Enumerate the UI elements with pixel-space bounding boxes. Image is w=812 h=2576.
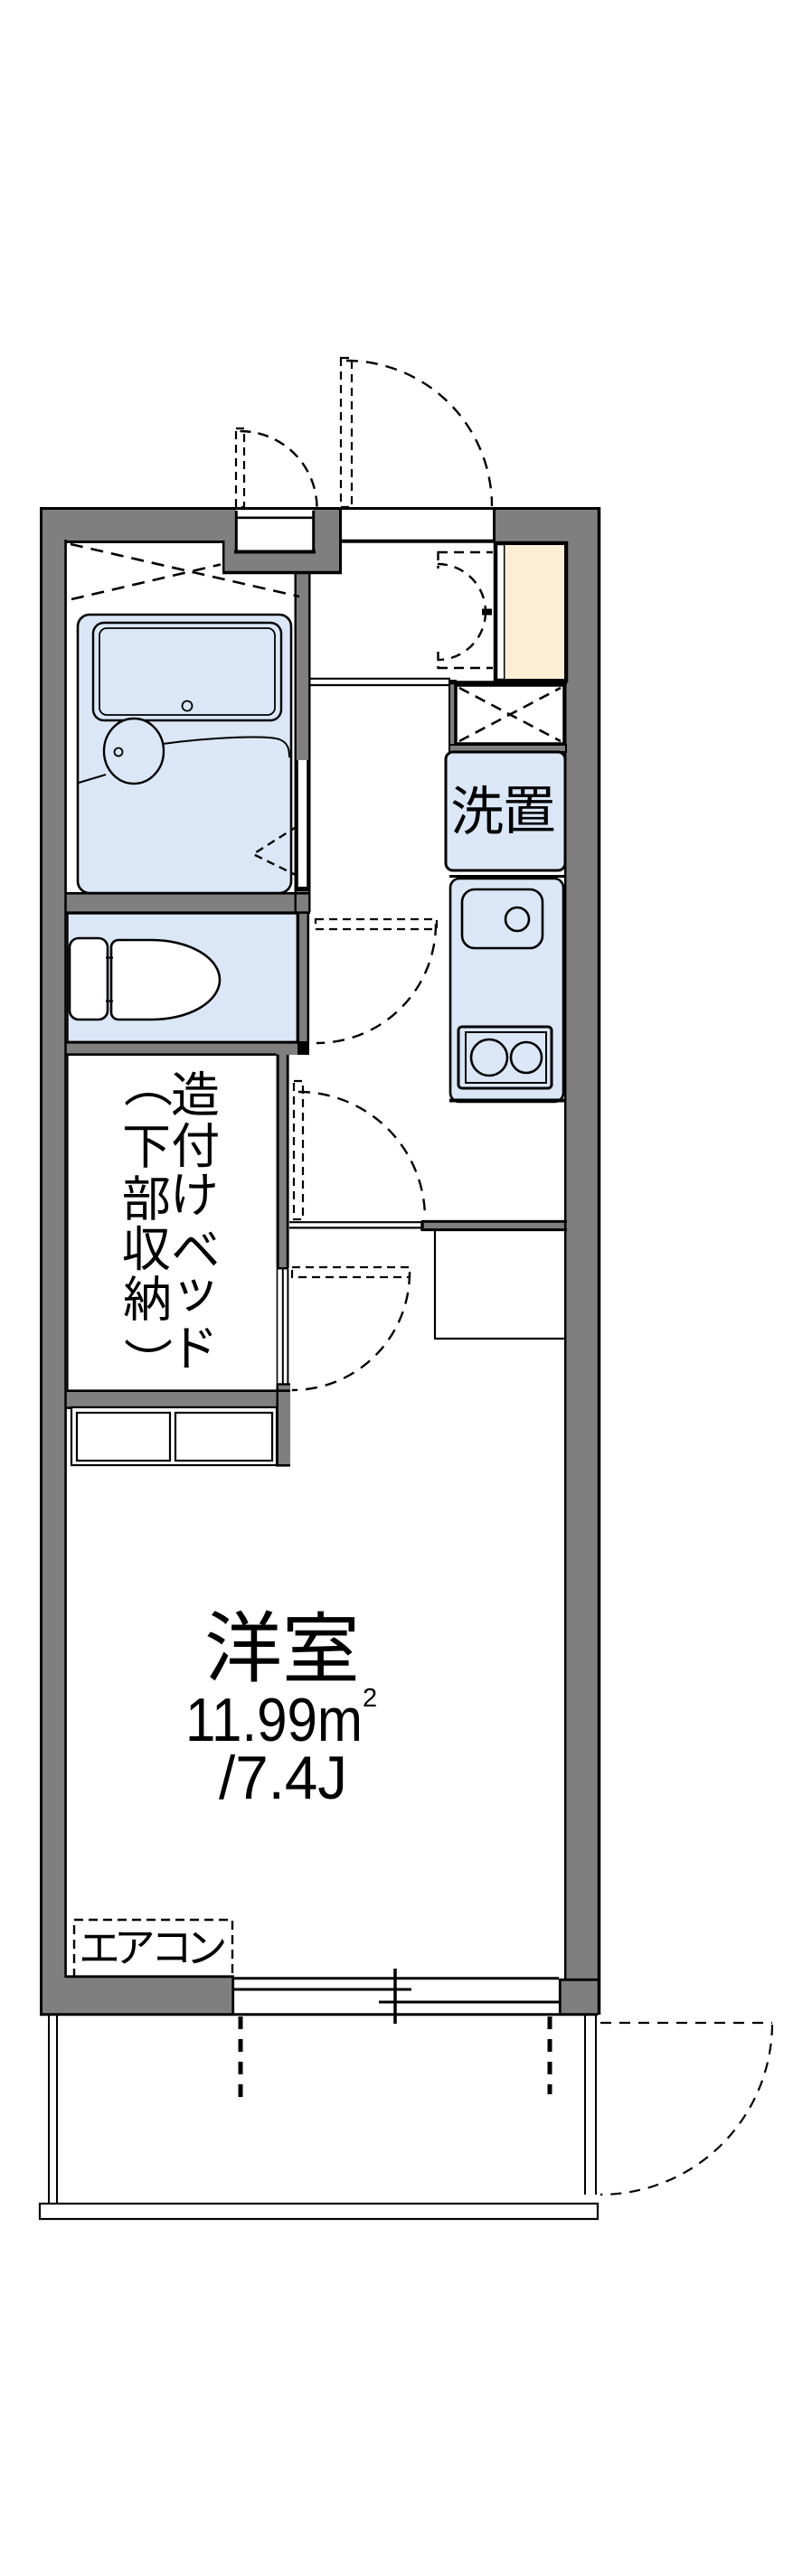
svg-text:2: 2 [363, 1684, 377, 1713]
svg-text:/7.4J: /7.4J [219, 1744, 347, 1812]
